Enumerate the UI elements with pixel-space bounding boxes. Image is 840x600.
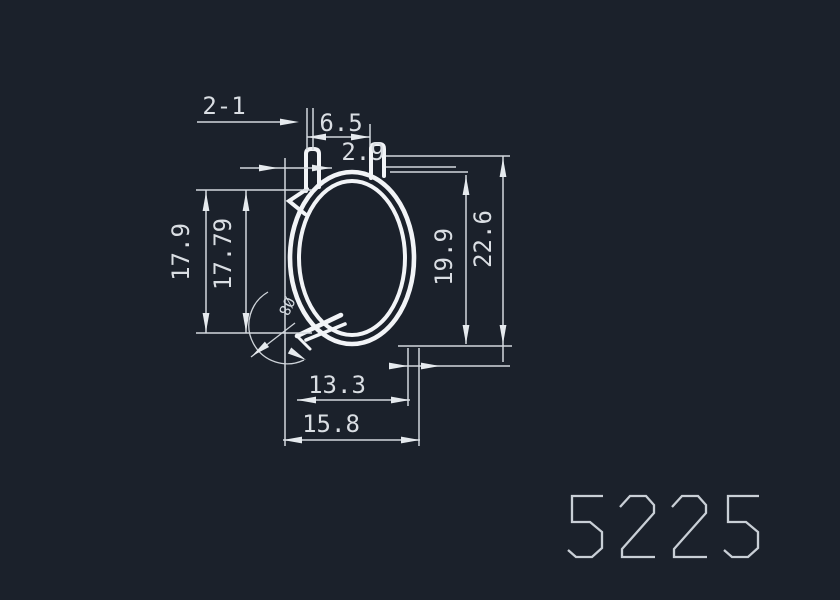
drawing-number — [568, 496, 759, 557]
cad-viewport: 2-1 6.5 2.9 17.9 17.79 19.9 22.6 13.3 15… — [0, 0, 840, 600]
profile-outer-wall — [290, 172, 414, 344]
dim-text-left-height-inner: 17.79 — [209, 218, 237, 290]
dimension-texts: 2-1 6.5 2.9 17.9 17.79 19.9 22.6 13.3 15… — [167, 92, 497, 438]
arrowhead — [500, 158, 507, 177]
profile-inner-wall — [299, 181, 405, 335]
dim-text-tab-width: 2.9 — [341, 138, 384, 166]
dim-text-right-height-inner: 19.9 — [430, 228, 458, 286]
dim-text-bottom-width-inner: 13.3 — [308, 371, 366, 399]
arrowhead — [401, 437, 420, 444]
arrowhead — [463, 325, 470, 344]
profile-section — [289, 144, 414, 349]
arrowhead — [421, 363, 440, 370]
drawing-number-digit — [672, 496, 707, 557]
drawing-number-digit — [724, 496, 759, 557]
arrowhead — [389, 363, 408, 370]
arrowhead — [500, 325, 507, 344]
drawing-number-digit — [568, 496, 603, 557]
arrowhead — [259, 165, 278, 172]
dim-text-top-width: 6.5 — [319, 109, 362, 137]
arrowhead — [203, 192, 210, 211]
dim-text-count-note: 2-1 — [202, 92, 245, 120]
drawing-number-digit — [620, 496, 655, 557]
arrowhead — [203, 313, 210, 332]
arrowhead — [283, 437, 302, 444]
arrowhead — [288, 348, 308, 363]
arrowhead — [391, 397, 410, 404]
arrowhead — [243, 192, 250, 211]
cad-drawing: 2-1 6.5 2.9 17.9 17.79 19.9 22.6 13.3 15… — [0, 0, 840, 600]
dim-text-right-height-outer: 22.6 — [469, 210, 497, 268]
arrowhead — [312, 165, 331, 172]
arrowhead — [463, 176, 470, 195]
dim-text-bottom-width-outer: 15.8 — [302, 410, 360, 438]
dim-text-left-height-outer: 17.9 — [167, 223, 195, 281]
arrowhead — [280, 119, 299, 126]
